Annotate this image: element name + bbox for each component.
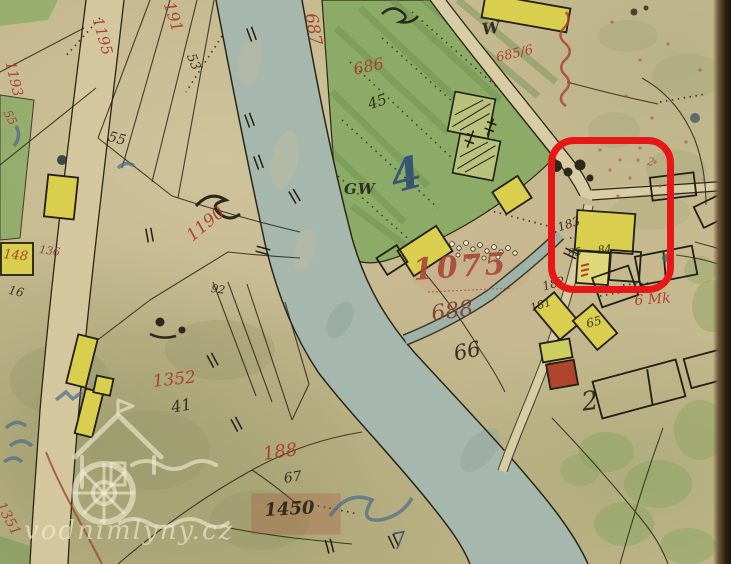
w-label: W [481, 19, 501, 37]
parcel-label-67: 67 [283, 470, 303, 486]
parcel-label-687: 687 [301, 12, 323, 47]
parcel-label-66: 66 [452, 338, 483, 364]
parcel-label-55: 55 [107, 130, 128, 148]
parcel-label-1075: 1075 [412, 249, 509, 286]
parcel-label-136: 136 [38, 244, 60, 258]
parcel-label-148: 148 [3, 248, 29, 264]
cadastral-map-canvas: 191 1195 1193 55 53 55 1190 687 686 45 4… [0, 0, 731, 564]
parcel-label-92: 92 [210, 283, 225, 296]
watermark-text: vodnimlyny.cz [24, 516, 234, 546]
handwritten-2: 2 [580, 388, 600, 416]
parcel-label-16: 16 [8, 284, 25, 299]
masonry-building [546, 360, 578, 389]
scan-page-edge [713, 0, 731, 564]
price-label-6mk: 6 Mk [634, 291, 671, 307]
parcel-label-688: 688 [430, 298, 475, 326]
highlight-annotation-box [548, 137, 674, 293]
gw-label: GW [344, 182, 376, 197]
parcel-label-1352: 1352 [152, 369, 197, 390]
house-number-65: 65 [585, 314, 603, 329]
